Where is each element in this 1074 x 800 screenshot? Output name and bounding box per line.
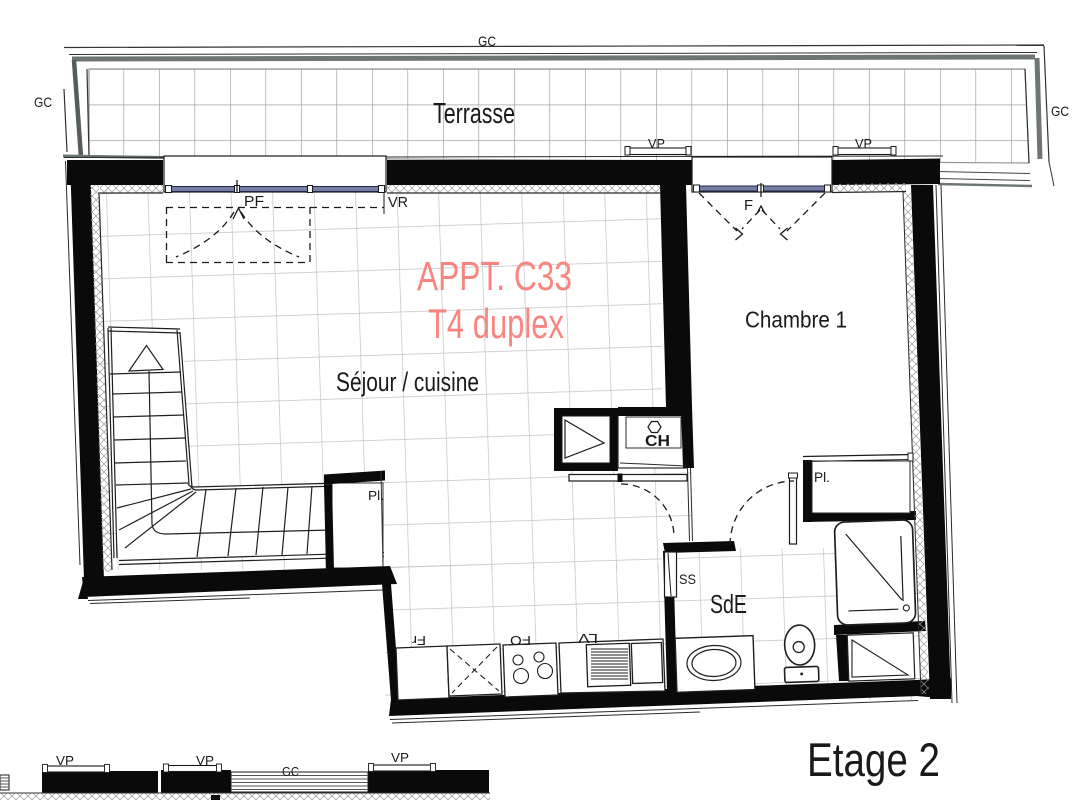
svg-text:CH: CH	[645, 433, 670, 450]
svg-text:VP: VP	[648, 136, 665, 151]
svg-text:GC: GC	[282, 764, 299, 779]
svg-text:VR: VR	[388, 195, 408, 211]
svg-text:Pl.: Pl.	[814, 469, 830, 485]
svg-text:Etage 2: Etage 2	[807, 733, 940, 786]
svg-text:SS: SS	[679, 571, 696, 587]
svg-text:VP: VP	[855, 136, 872, 151]
svg-text:Fr: Fr	[412, 633, 426, 647]
svg-text:VP: VP	[391, 750, 409, 765]
svg-text:GC: GC	[34, 94, 52, 110]
svg-text:GC: GC	[1051, 103, 1069, 119]
svg-text:SdE: SdE	[710, 589, 747, 619]
svg-text:FO: FO	[510, 633, 531, 647]
svg-text:Pl.: Pl.	[368, 488, 384, 503]
svg-text:VP: VP	[56, 753, 74, 768]
svg-text:LV: LV	[577, 631, 598, 645]
svg-text:GC: GC	[478, 33, 496, 49]
svg-text:VP: VP	[196, 753, 214, 768]
svg-text:APPT. C33: APPT. C33	[417, 253, 572, 299]
svg-text:Chambre 1: Chambre 1	[745, 307, 847, 333]
svg-text:Séjour / cuisine: Séjour / cuisine	[336, 367, 479, 397]
svg-text:Terrasse: Terrasse	[433, 98, 515, 130]
svg-text:F: F	[744, 198, 753, 214]
svg-text:T4 duplex: T4 duplex	[428, 300, 564, 347]
